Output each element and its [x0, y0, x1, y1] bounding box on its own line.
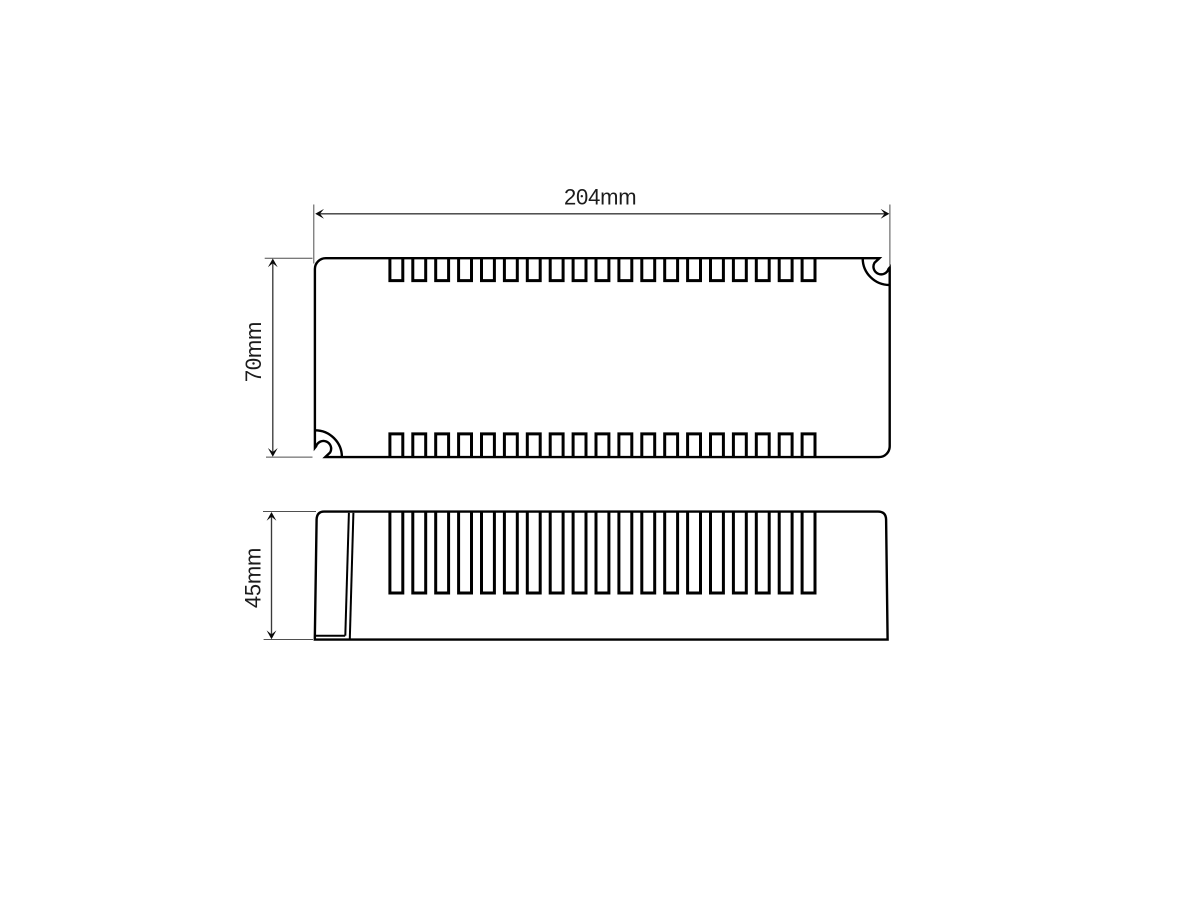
svg-text:45mm: 45mm — [240, 548, 265, 608]
svg-text:204mm: 204mm — [564, 184, 636, 209]
svg-text:70mm: 70mm — [241, 322, 266, 382]
